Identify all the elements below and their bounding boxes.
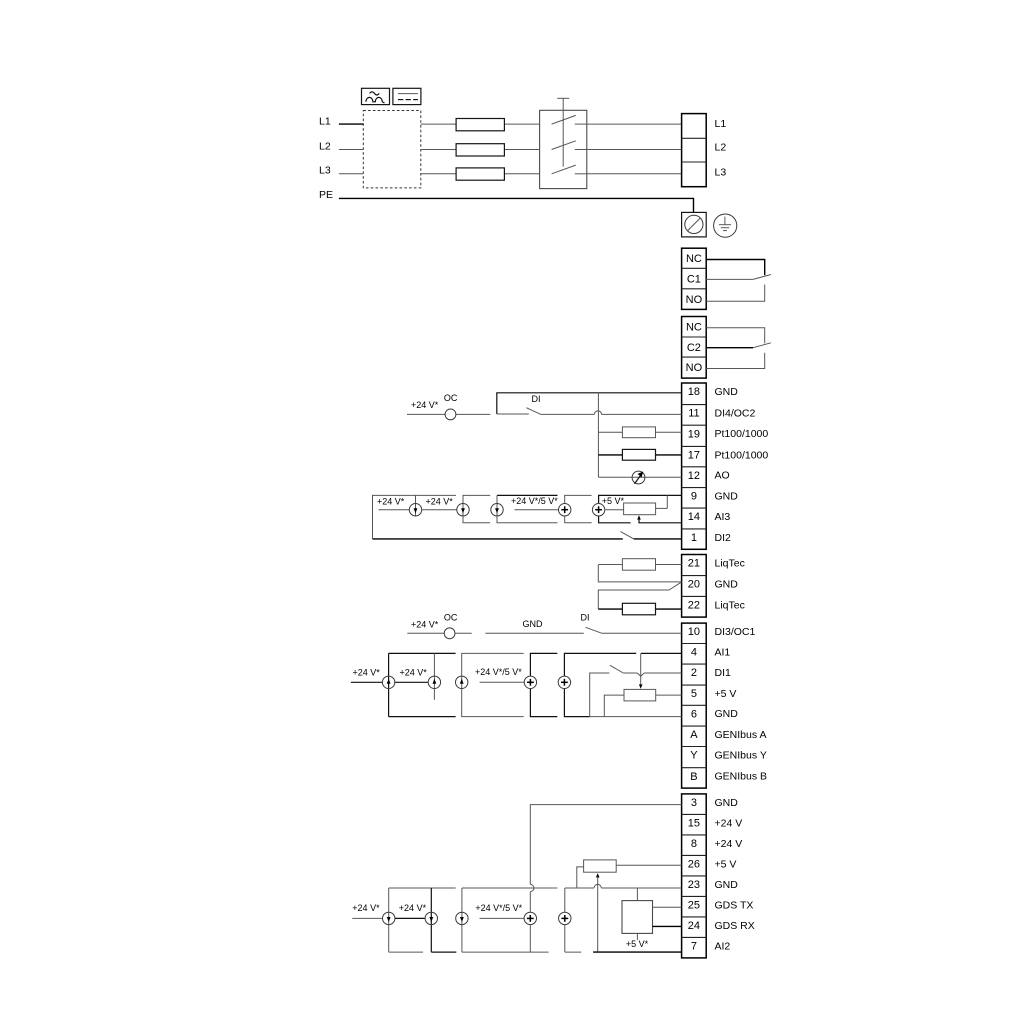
svg-text:NC: NC: [686, 322, 702, 334]
svg-text:DI: DI: [581, 612, 590, 622]
svg-text:NO: NO: [686, 362, 703, 374]
svg-text:+24 V*: +24 V*: [399, 903, 427, 913]
svg-text:17: 17: [688, 450, 700, 462]
svg-text:9: 9: [691, 491, 697, 503]
svg-text:DI2: DI2: [715, 532, 732, 544]
svg-text:+24 V*/5 V*: +24 V*/5 V*: [475, 903, 522, 913]
svg-text:GENIbus B: GENIbus B: [715, 771, 768, 783]
svg-text:GND: GND: [715, 491, 739, 503]
svg-text:25: 25: [688, 900, 700, 912]
svg-text:AO: AO: [715, 470, 730, 482]
svg-text:AI2: AI2: [715, 940, 731, 952]
svg-text:DI: DI: [532, 394, 541, 404]
svg-text:4: 4: [691, 647, 697, 659]
svg-text:14: 14: [688, 511, 700, 523]
svg-text:+24 V*: +24 V*: [400, 668, 428, 678]
svg-text:GND: GND: [523, 619, 544, 629]
svg-text:+5 V*: +5 V*: [626, 939, 649, 949]
svg-text:AI3: AI3: [715, 511, 731, 523]
svg-text:LiqTec: LiqTec: [715, 599, 745, 611]
svg-text:26: 26: [688, 859, 700, 871]
svg-text:15: 15: [688, 818, 700, 830]
svg-text:19: 19: [688, 428, 700, 440]
svg-text:GDS TX: GDS TX: [715, 899, 754, 911]
svg-text:L3: L3: [715, 166, 727, 178]
svg-text:A: A: [690, 729, 698, 741]
svg-text:LiqTec: LiqTec: [715, 557, 745, 569]
svg-text:+24 V*: +24 V*: [426, 497, 454, 507]
svg-text:L1: L1: [319, 116, 331, 128]
svg-text:10: 10: [688, 626, 700, 638]
svg-text:DI3/OC1: DI3/OC1: [715, 626, 756, 638]
svg-text:+5 V: +5 V: [715, 858, 737, 870]
svg-text:C1: C1: [687, 273, 701, 285]
svg-text:GND: GND: [715, 797, 739, 809]
svg-text:+24 V*/5 V*: +24 V*/5 V*: [511, 496, 558, 506]
svg-text:24: 24: [688, 920, 700, 932]
svg-text:L2: L2: [715, 142, 727, 154]
svg-text:23: 23: [688, 879, 700, 891]
svg-text:AI1: AI1: [715, 646, 731, 658]
svg-text:7: 7: [691, 941, 697, 953]
svg-text:L2: L2: [319, 140, 331, 152]
svg-text:+24 V*: +24 V*: [411, 400, 439, 410]
svg-text:+24 V*: +24 V*: [411, 620, 439, 630]
svg-text:22: 22: [688, 600, 700, 612]
svg-text:L1: L1: [715, 118, 727, 130]
svg-text:DI4/OC2: DI4/OC2: [715, 408, 756, 420]
svg-text:OC: OC: [444, 393, 458, 403]
svg-text:GND: GND: [715, 708, 739, 720]
svg-text:Y: Y: [690, 750, 698, 762]
svg-text:NO: NO: [686, 294, 703, 306]
svg-text:+5 V: +5 V: [715, 688, 737, 700]
svg-text:PE: PE: [319, 189, 333, 201]
svg-text:12: 12: [688, 470, 700, 482]
svg-text:+24 V*/5 V*: +24 V*/5 V*: [475, 667, 522, 677]
svg-text:Pt100/1000: Pt100/1000: [715, 428, 769, 440]
svg-text:GENIbus Y: GENIbus Y: [715, 749, 767, 761]
svg-text:+24 V*: +24 V*: [353, 668, 381, 678]
svg-text:18: 18: [688, 386, 700, 398]
svg-text:+5 V*: +5 V*: [602, 496, 625, 506]
svg-text:GDS RX: GDS RX: [715, 920, 755, 932]
svg-text:GND: GND: [715, 879, 739, 891]
svg-text:GENIbus A: GENIbus A: [715, 729, 767, 741]
svg-text:21: 21: [688, 558, 700, 570]
svg-text:GND: GND: [715, 386, 739, 398]
svg-text:Pt100/1000: Pt100/1000: [715, 449, 769, 461]
svg-text:11: 11: [688, 408, 699, 420]
svg-text:DI1: DI1: [715, 667, 732, 679]
svg-text:GND: GND: [715, 579, 739, 591]
svg-text:+24 V*: +24 V*: [377, 497, 405, 507]
svg-text:5: 5: [691, 688, 697, 700]
svg-text:+24 V*: +24 V*: [352, 903, 380, 913]
svg-text:L3: L3: [319, 164, 331, 176]
svg-text:8: 8: [691, 838, 697, 850]
svg-text:1: 1: [691, 532, 697, 544]
svg-text:+24 V: +24 V: [715, 817, 743, 829]
svg-text:OC: OC: [444, 613, 458, 623]
svg-text:C2: C2: [687, 342, 701, 354]
svg-text:NC: NC: [686, 253, 702, 265]
svg-text:+24 V: +24 V: [715, 838, 743, 850]
svg-text:B: B: [690, 771, 697, 783]
svg-text:20: 20: [688, 579, 700, 591]
svg-text:3: 3: [691, 797, 697, 809]
svg-text:2: 2: [691, 667, 697, 679]
svg-text:6: 6: [691, 708, 697, 720]
